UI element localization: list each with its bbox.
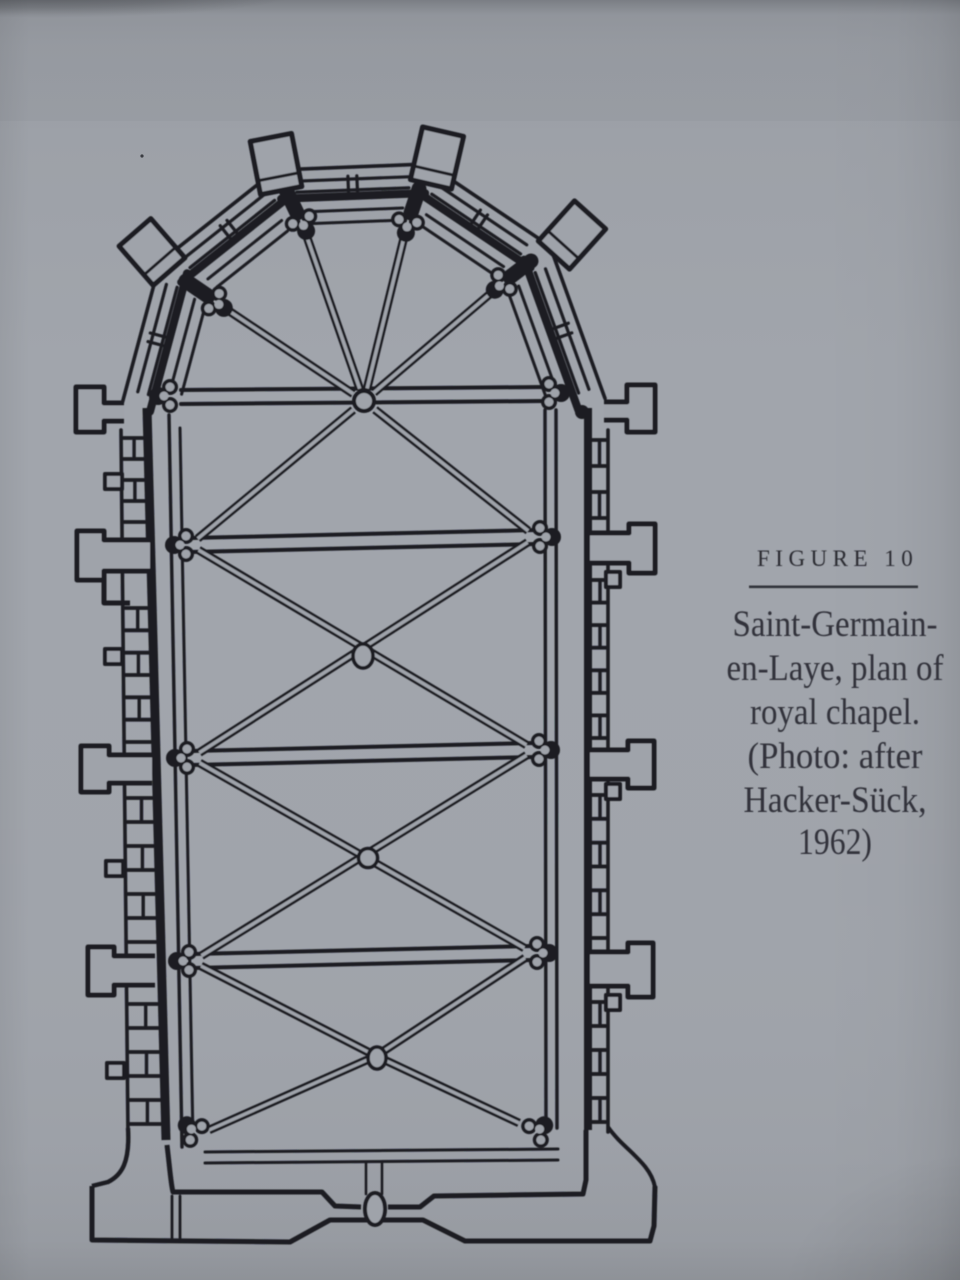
svg-text:FIGURE 10: FIGURE 10 — [757, 546, 918, 571]
svg-text:(Photo: after: (Photo: after — [748, 736, 923, 777]
svg-text:1962): 1962) — [798, 822, 872, 863]
svg-text:en-Laye, plan of: en-Laye, plan of — [727, 648, 944, 689]
svg-text:Saint-Germain-: Saint-Germain- — [733, 604, 938, 645]
svg-text:royal chapel.: royal chapel. — [750, 692, 920, 733]
svg-text:Hacker-Sück,: Hacker-Sück, — [744, 780, 927, 821]
